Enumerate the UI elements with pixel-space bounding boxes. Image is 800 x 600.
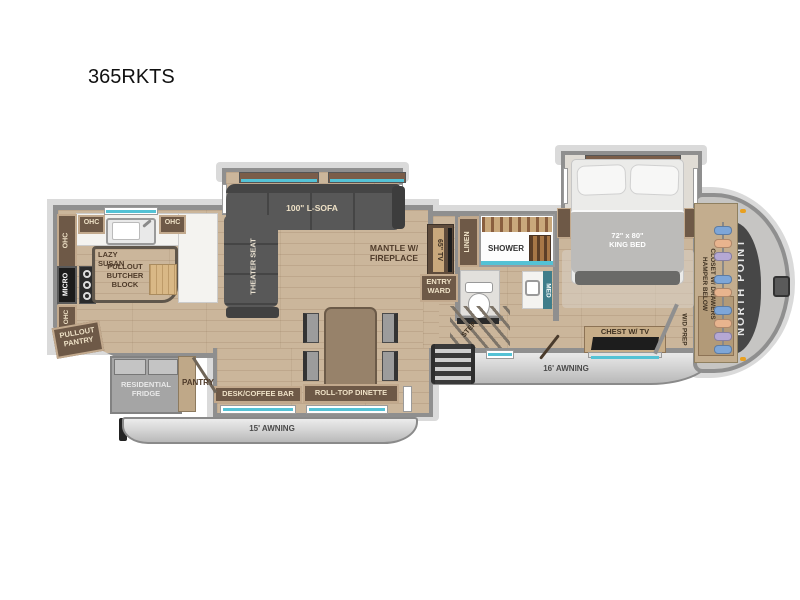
closet-clothes bbox=[714, 332, 732, 341]
slide-window-glass bbox=[309, 408, 385, 411]
theater-seat-ottoman bbox=[226, 307, 279, 318]
sofa-slide-window-glass bbox=[330, 179, 404, 182]
dinette-chair bbox=[382, 351, 398, 381]
shower-shelf bbox=[529, 235, 551, 263]
slide-side-window bbox=[403, 386, 412, 412]
closet-clothes bbox=[714, 226, 732, 235]
ohc-label: OHC bbox=[161, 219, 184, 227]
dinette-chair bbox=[303, 313, 319, 343]
chest-window-glass bbox=[591, 356, 659, 359]
residential-fridge-label: RESIDENTIAL FRIDGE bbox=[112, 381, 180, 399]
tv-65-label: 65" TV bbox=[434, 229, 444, 271]
closet-clothes bbox=[714, 252, 732, 261]
fridge-door bbox=[148, 359, 178, 375]
cooktop-burner bbox=[83, 281, 91, 289]
closet-clothes bbox=[714, 288, 732, 297]
slide-window-glass bbox=[223, 408, 293, 411]
cooktop-burner bbox=[83, 292, 91, 300]
butcher-block-label: PULLOUT BUTCHER BLOCK bbox=[100, 263, 150, 290]
mantle-fireplace-label: MANTLE W/ FIREPLACE bbox=[358, 243, 430, 263]
desk-coffee-bar-label: DESK/COFFEE BAR bbox=[216, 390, 300, 399]
floorplan-365rkts: 365RKTS 15' AWNING 16' AWNING NORTH POIN… bbox=[0, 0, 800, 600]
l-sofa-arm bbox=[392, 186, 405, 229]
l-sofa-back bbox=[226, 184, 400, 193]
ohc-label: OHC bbox=[80, 219, 103, 227]
closet-clothes bbox=[714, 319, 732, 328]
tv-screen bbox=[448, 228, 452, 272]
chest-tv-screen bbox=[591, 337, 659, 350]
linen-label: LINEN bbox=[463, 220, 473, 264]
door-side-window-glass bbox=[488, 353, 512, 356]
pantry-label: PANTRY bbox=[178, 378, 218, 387]
marker-light bbox=[740, 209, 746, 213]
closet-clothes bbox=[714, 275, 732, 284]
l-sofa-label: 100" L-SOFA bbox=[262, 203, 362, 213]
bed-foot bbox=[575, 271, 680, 285]
fridge-door bbox=[114, 359, 146, 375]
shower-glass bbox=[481, 261, 553, 265]
bath-sink bbox=[525, 280, 540, 296]
butcher-block bbox=[149, 264, 177, 295]
sofa-slide-window-glass bbox=[241, 179, 317, 182]
bedroom-side-window bbox=[693, 168, 698, 204]
dinette-table bbox=[324, 307, 377, 392]
ohc-label: OHC bbox=[63, 226, 72, 256]
entry-steps bbox=[431, 344, 475, 384]
bed-pillow bbox=[629, 164, 679, 196]
kitchen-window-glass bbox=[106, 210, 156, 213]
bedroom-side-window bbox=[563, 168, 568, 204]
floor-opening bbox=[423, 300, 439, 348]
king-bed-label: 72" x 80" KING BED bbox=[571, 232, 684, 250]
entry-ward-label: ENTRY WARD bbox=[421, 278, 457, 296]
awning-15-label: 15' AWNING bbox=[232, 424, 312, 433]
nightstand bbox=[557, 208, 571, 238]
roll-top-dinette-label: ROLL-TOP DINETTE bbox=[305, 389, 397, 398]
cooktop-burner bbox=[83, 270, 91, 278]
chest-tv-label: CHEST W/ TV bbox=[586, 328, 664, 337]
kitchen-sink-basin bbox=[112, 222, 140, 240]
microwave-label: MICRO bbox=[63, 268, 72, 302]
awning-16-label: 16' AWNING bbox=[526, 364, 606, 373]
toilet-tank bbox=[465, 282, 493, 293]
closet-clothes bbox=[714, 239, 732, 248]
closet-clothes bbox=[714, 306, 732, 315]
med-cabinet-label: MED bbox=[543, 276, 552, 306]
kingpin bbox=[773, 276, 790, 297]
bed-pillow bbox=[576, 164, 626, 196]
dinette-chair bbox=[382, 313, 398, 343]
floorplan-model-title: 365RKTS bbox=[88, 66, 175, 90]
wd-prep-label: W/D PREP bbox=[679, 304, 688, 356]
shower-label: SHOWER bbox=[484, 244, 528, 253]
theater-seat-label: THEATER SEAT bbox=[248, 225, 259, 309]
dinette-chair bbox=[303, 351, 319, 381]
closet-clothes bbox=[714, 345, 732, 354]
marker-light bbox=[740, 357, 746, 361]
shower-tile bbox=[482, 217, 552, 232]
